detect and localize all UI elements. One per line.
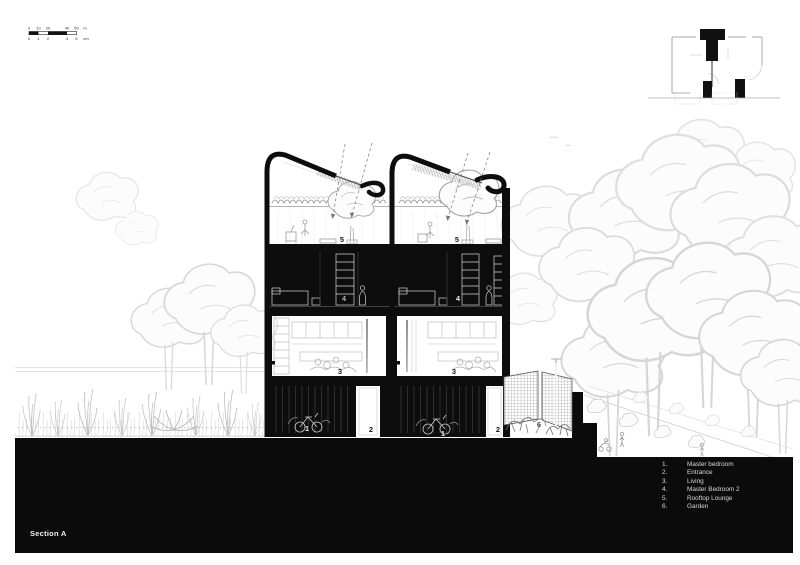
scale-tick-cm: 0 xyxy=(28,36,31,41)
legend-row: 5. Rooftop Lounge xyxy=(662,495,740,503)
label-rooftop-lounge: 5 xyxy=(340,235,344,244)
scale-unit-m: m xyxy=(83,26,87,31)
legend-label: Living xyxy=(687,478,704,486)
legend-number: 5. xyxy=(662,495,687,503)
key-plan-hatch-box xyxy=(675,93,700,104)
legend-label: Garden xyxy=(687,503,708,511)
label-entrance: 2 xyxy=(496,425,500,434)
scale-tick-m: 20 xyxy=(46,26,51,31)
scale-bar-segment xyxy=(48,32,67,35)
key-plan-hatch-box xyxy=(712,93,737,104)
label-entrance: 2 xyxy=(369,425,373,434)
key-plan xyxy=(648,29,780,104)
scale-tick-m: 10 xyxy=(36,26,41,31)
scale-bar: 0 10 20 40 50 m 0 1 2 4 5 cm xyxy=(28,26,89,42)
architectural-sheet: 0 10 20 40 50 m 0 1 2 4 5 cm xyxy=(0,0,800,565)
key-plan-core-stem xyxy=(706,40,718,61)
legend-number: 6. xyxy=(662,503,687,511)
legend-row: 1. Master bedroom xyxy=(662,461,740,469)
label-master-bedroom: 1 xyxy=(441,429,445,438)
label-rooftop-lounge: 5 xyxy=(455,235,459,244)
living-floor-slab xyxy=(266,376,510,384)
right-cut-wall xyxy=(502,188,510,384)
scale-tick-m: 50 xyxy=(74,26,79,31)
label-living: 3 xyxy=(338,367,342,376)
key-plan-wall-stub xyxy=(735,79,745,98)
label-living: 3 xyxy=(452,367,456,376)
scale-tick-m: 0 xyxy=(28,26,31,31)
legend-label: Master bedroom xyxy=(687,461,734,469)
birds xyxy=(550,137,570,146)
legend-label: Entrance xyxy=(687,469,713,477)
scale-tick-m: 40 xyxy=(65,26,70,31)
legend-row: 3. Living xyxy=(662,478,740,486)
road-bush xyxy=(669,403,684,414)
scale-bar-segment xyxy=(29,32,39,35)
garden-wall-step xyxy=(572,392,583,438)
living-level xyxy=(266,316,510,384)
tree-canopy xyxy=(76,172,138,220)
road-bush xyxy=(633,392,648,403)
key-plan-wall-stub xyxy=(703,81,712,98)
label-master-bedroom: 1 xyxy=(305,424,309,433)
garden-wall-step xyxy=(583,423,597,457)
road-bush xyxy=(688,435,705,447)
legend-number: 3. xyxy=(662,478,687,486)
key-plan-core xyxy=(700,29,725,40)
living-blade xyxy=(366,319,368,373)
garden-fence-panel xyxy=(504,371,538,425)
scale-tick-cm: 1 xyxy=(37,36,40,41)
entrance-door-right xyxy=(486,386,503,437)
scale-tick-cm: 2 xyxy=(47,36,50,41)
scale-unit-cm: cm xyxy=(83,36,89,41)
legend-label: Master Bedroom 2 xyxy=(687,486,740,494)
legend-row: 6. Garden xyxy=(662,503,740,511)
road-bush xyxy=(705,415,720,426)
garden-light-head xyxy=(551,359,561,363)
legend: 1. Master bedroom 2. Entrance 3. Living … xyxy=(662,461,740,512)
legend-number: 2. xyxy=(662,469,687,477)
pedestrian-figure xyxy=(620,432,624,447)
dashed-line-arrowheads xyxy=(331,213,470,226)
living-blade xyxy=(406,320,408,372)
road-bush xyxy=(741,426,756,437)
legend-row: 4. Master Bedroom 2 xyxy=(662,486,740,494)
ground-level xyxy=(266,384,510,437)
scale-tick-cm: 5 xyxy=(75,36,78,41)
road-bush xyxy=(587,399,606,413)
label-garden: 6 xyxy=(537,420,541,429)
legend-number: 1. xyxy=(662,461,687,469)
key-plan-doors xyxy=(690,49,762,84)
legend-number: 4. xyxy=(662,486,687,494)
scale-tick-cm: 4 xyxy=(66,36,69,41)
legend-label: Rooftop Lounge xyxy=(687,495,732,503)
road-edge xyxy=(575,392,793,464)
legend-row: 2. Entrance xyxy=(662,469,740,477)
road-bush xyxy=(619,413,638,427)
fence-rails xyxy=(15,368,264,372)
section-title: Section A xyxy=(30,529,67,538)
